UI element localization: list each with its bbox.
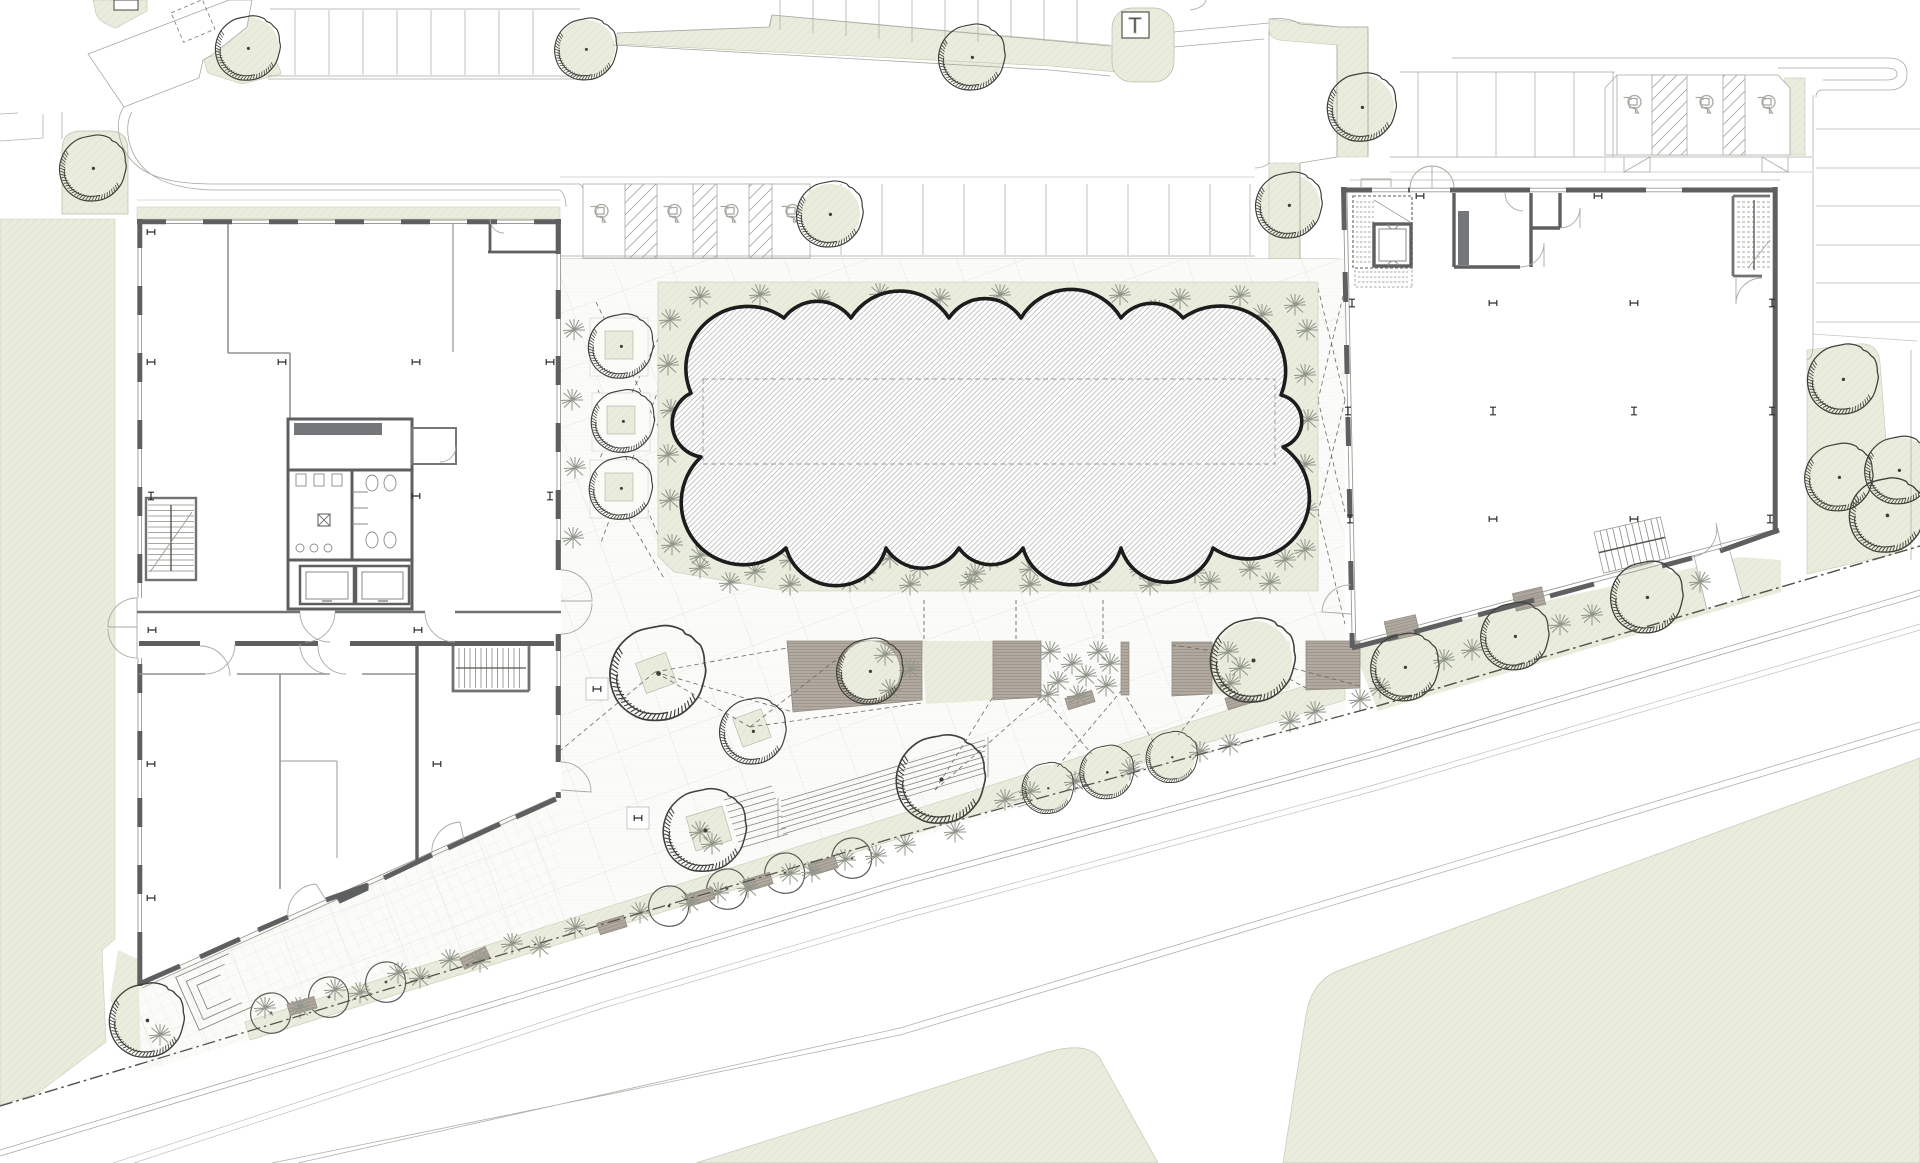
svg-text:T: T xyxy=(1128,13,1141,38)
